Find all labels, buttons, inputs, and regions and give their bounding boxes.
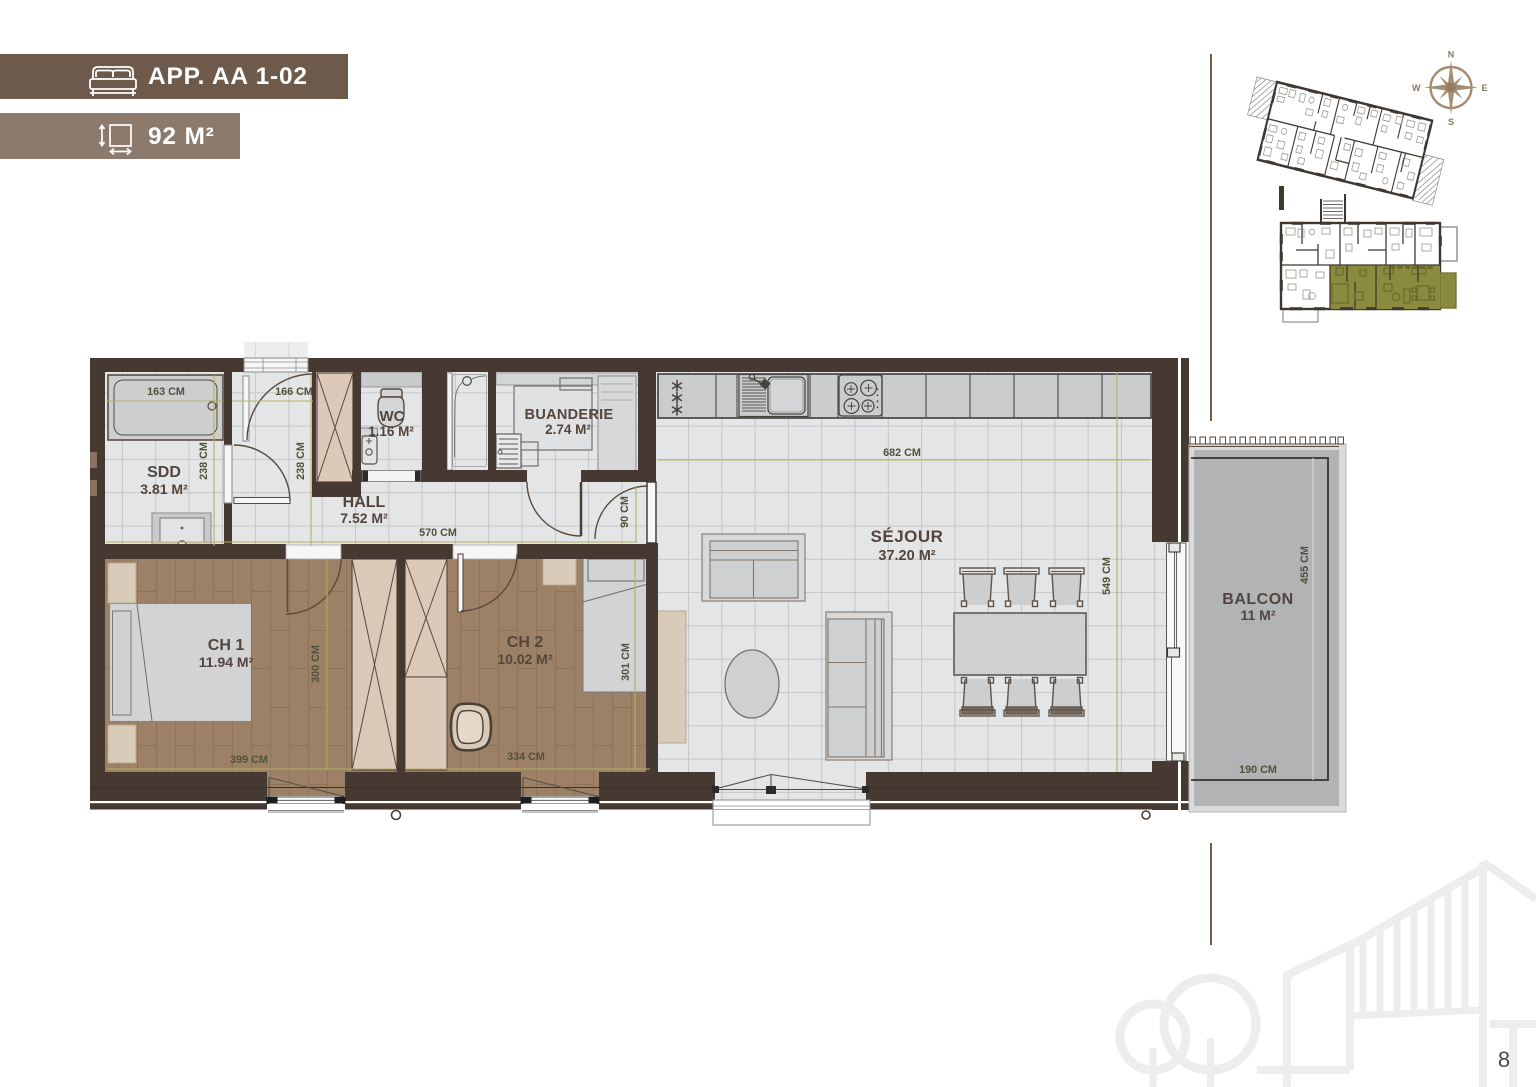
svg-text:238 CM: 238 CM (198, 442, 210, 480)
svg-text:HALL: HALL (343, 494, 386, 511)
svg-text:92 M²: 92 M² (148, 123, 215, 150)
svg-text:11 M²: 11 M² (1240, 607, 1275, 623)
svg-text:APP. AA 1-02: APP. AA 1-02 (148, 63, 308, 90)
svg-text:BUANDERIE: BUANDERIE (525, 407, 614, 423)
svg-text:190 CM: 190 CM (1239, 764, 1277, 776)
svg-text:11.94 M²: 11.94 M² (199, 654, 254, 670)
svg-text:399 CM: 399 CM (230, 754, 268, 766)
svg-text:163 CM: 163 CM (147, 386, 185, 398)
svg-text:334 CM: 334 CM (507, 751, 545, 763)
svg-text:1.16 M²: 1.16 M² (368, 424, 414, 439)
svg-text:S: S (1448, 117, 1454, 127)
svg-text:570 CM: 570 CM (419, 527, 457, 539)
svg-text:W: W (1412, 83, 1421, 93)
svg-text:166 CM: 166 CM (275, 386, 313, 398)
svg-text:300 CM: 300 CM (310, 645, 322, 683)
svg-text:CH 2: CH 2 (507, 634, 544, 651)
svg-text:2.74 M²: 2.74 M² (545, 422, 591, 437)
svg-text:301 CM: 301 CM (620, 643, 632, 681)
svg-text:WC: WC (380, 408, 405, 425)
svg-text:7.52 M²: 7.52 M² (340, 510, 388, 526)
svg-text:CH 1: CH 1 (208, 637, 245, 654)
svg-text:BALCON: BALCON (1222, 591, 1293, 608)
svg-text:10.02 M²: 10.02 M² (497, 651, 553, 667)
svg-text:682 CM: 682 CM (883, 447, 921, 459)
svg-text:455 CM: 455 CM (1299, 546, 1311, 584)
svg-text:238 CM: 238 CM (295, 442, 307, 480)
svg-text:SDD: SDD (147, 464, 181, 481)
svg-text:3.81 M²: 3.81 M² (140, 481, 188, 497)
svg-text:E: E (1482, 83, 1488, 93)
svg-text:N: N (1448, 50, 1455, 60)
svg-text:8: 8 (1498, 1047, 1510, 1072)
svg-text:37.20 M²: 37.20 M² (878, 548, 935, 564)
svg-text:90 CM: 90 CM (619, 496, 631, 528)
svg-text:549 CM: 549 CM (1101, 557, 1113, 595)
svg-text:SÉJOUR: SÉJOUR (871, 527, 944, 546)
